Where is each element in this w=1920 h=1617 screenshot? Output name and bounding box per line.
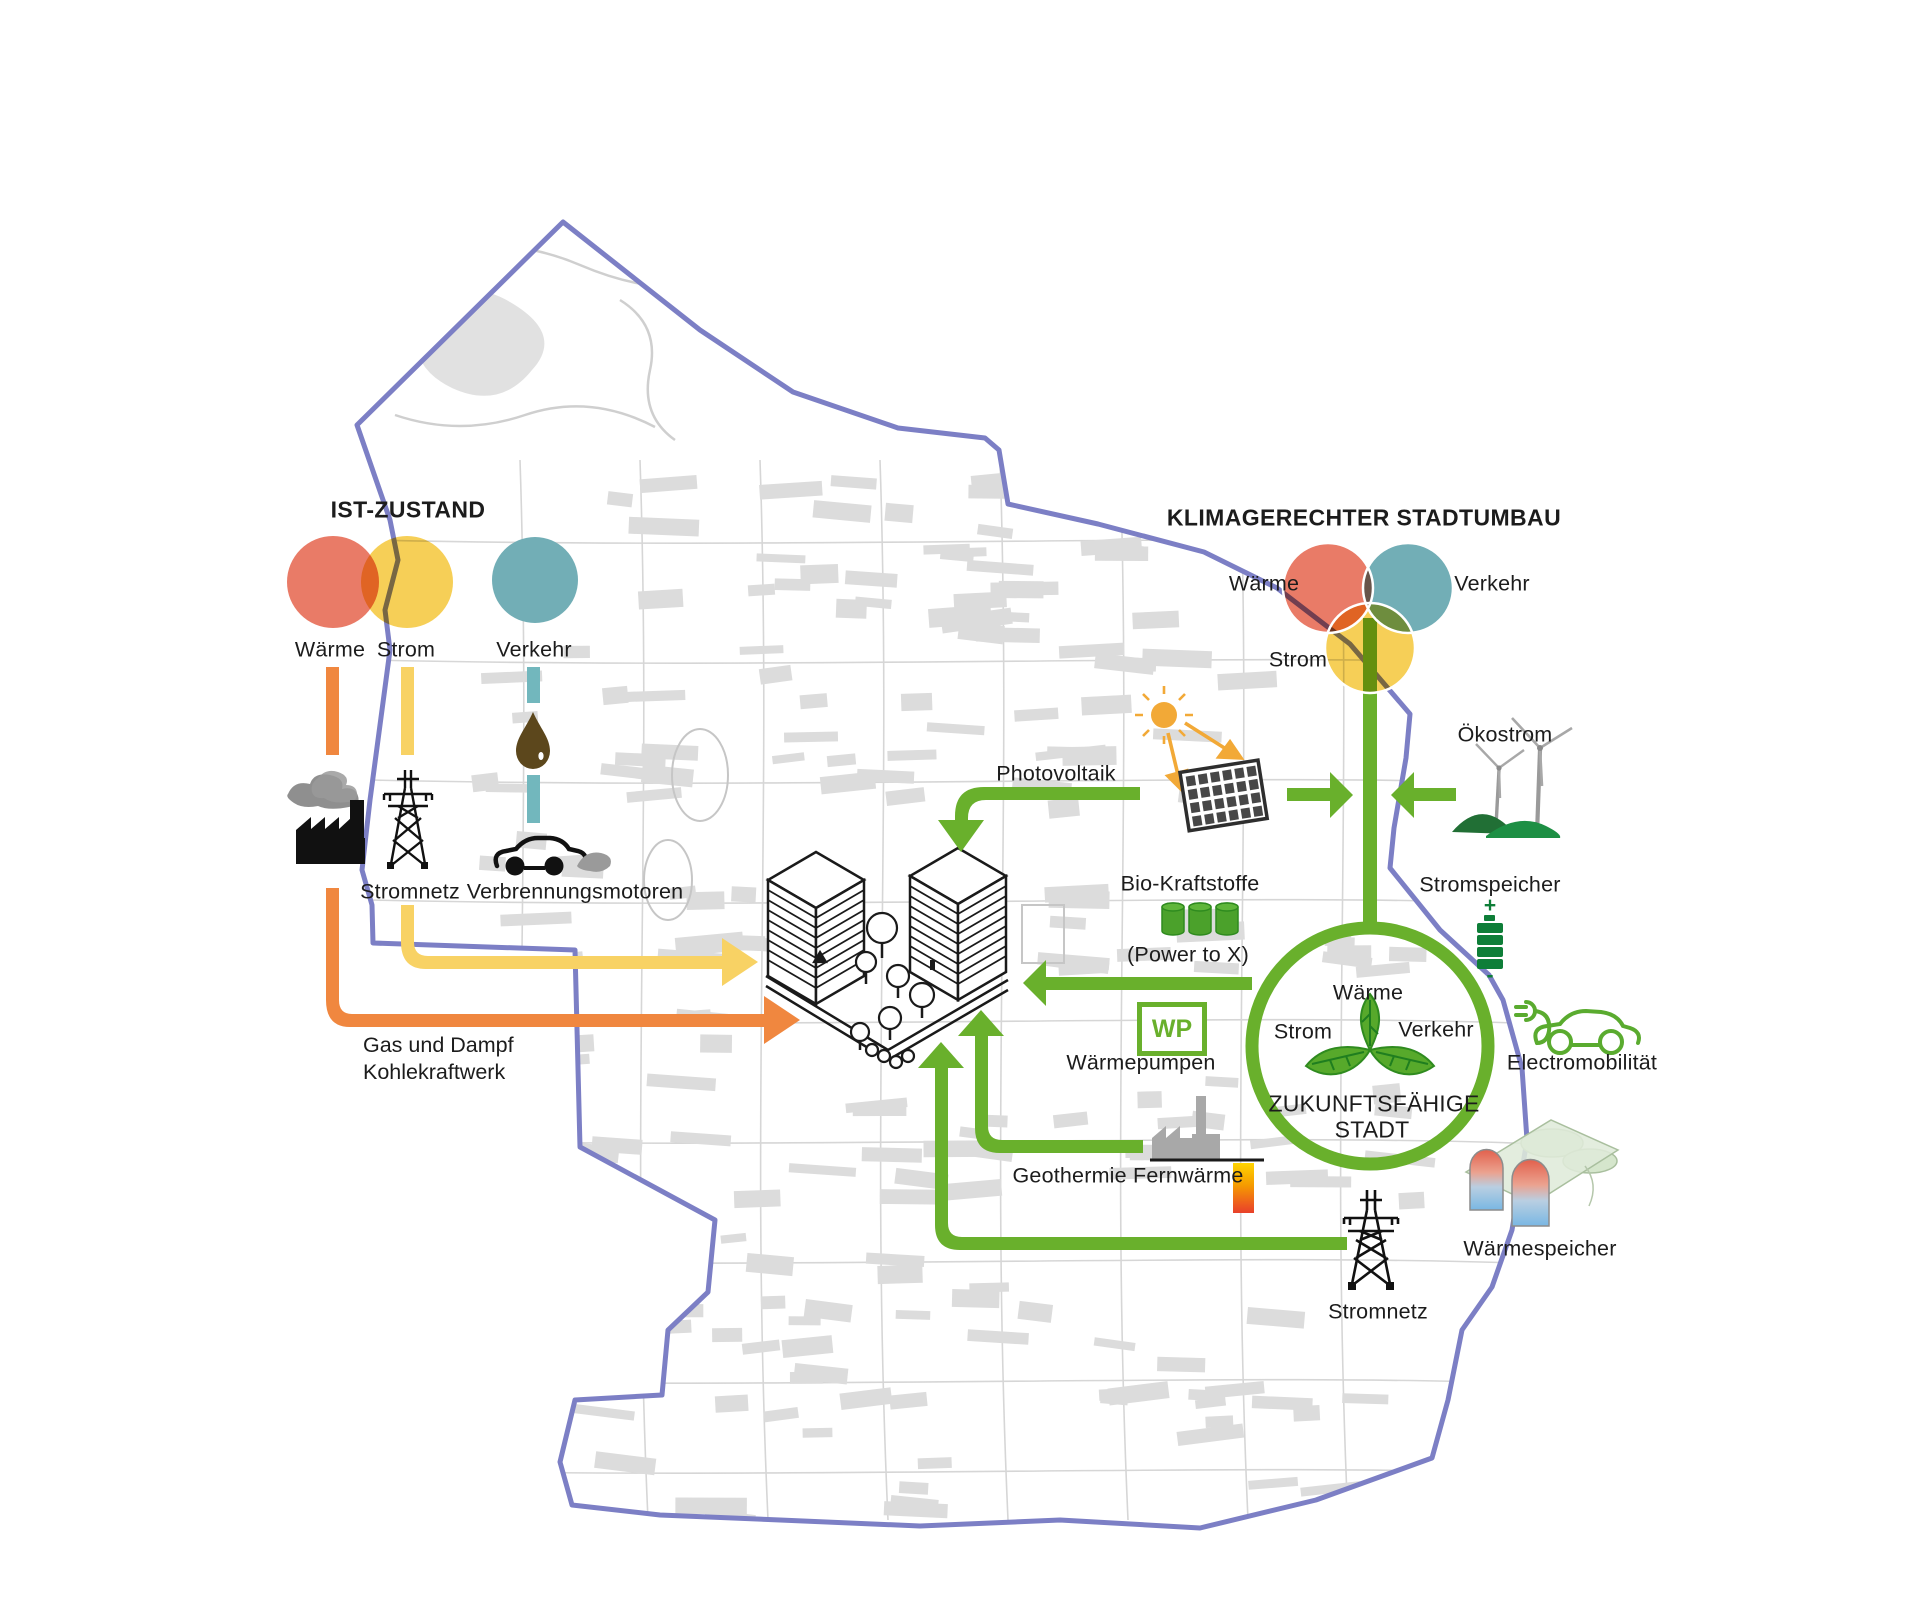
geothermie-label: Geothermie Fernwärme (1012, 1164, 1243, 1189)
coal-power-plant-icon (287, 771, 365, 864)
waermespeicher-label: Wärmespeicher (1463, 1237, 1616, 1262)
bio-kraftstoffe-label: Bio-Kraftstoffe (1121, 872, 1260, 897)
stromnetz-right-label: Stromnetz (1328, 1300, 1428, 1325)
waermepumpen-label: Wärmepumpen (1066, 1051, 1215, 1076)
ist-venn-circles (287, 536, 578, 628)
transmission-tower-right-icon (1344, 1190, 1398, 1290)
heat-flow-orange-arrow (326, 667, 800, 1044)
city-circle-label-verkehr: Verkehr (1398, 1018, 1474, 1043)
power-to-x-label: (Power to X) (1127, 943, 1249, 968)
city-circle-title-line2: STADT (1335, 1117, 1410, 1144)
venn-label-strom: Strom (1269, 648, 1327, 673)
venn-label-waerme: Wärme (1229, 572, 1299, 597)
underground-heat-storage-icon (1466, 1120, 1618, 1226)
combustion-car-icon (496, 838, 611, 876)
battery-minus-sign: - (1487, 964, 1494, 988)
infographic-canvas: IST-ZUSTAND Wärme Strom Verkehr Stromnet… (0, 0, 1920, 1617)
kohlekraftwerk-label: Gas und Dampf Kohlekraftwerk (363, 1032, 514, 1086)
battery-plus-sign: + (1484, 894, 1496, 918)
city-circle-label-strom: Strom (1274, 1020, 1332, 1045)
klima-heading: KLIMAGERECHTER STADTUMBAU (1167, 505, 1561, 532)
city-circle-title-line1: ZUKUNFTSFÄHIGE (1268, 1091, 1479, 1118)
ist-circle-label-strom: Strom (377, 638, 435, 663)
ist-circle-label-waerme: Wärme (295, 638, 365, 663)
ist-heading: IST-ZUSTAND (331, 497, 486, 524)
photovoltaik-label: Photovoltaik (996, 762, 1116, 787)
ist-circle-label-verkehr: Verkehr (496, 638, 572, 663)
oekostrom-label: Ökostrom (1458, 723, 1553, 748)
battery-icon (1477, 915, 1503, 969)
venn-label-verkehr: Verkehr (1454, 572, 1530, 597)
ist-stromnetz-label: Stromnetz (360, 880, 460, 905)
bio-fuel-barrels-icon (1162, 903, 1238, 935)
wp-box: WP (1137, 1002, 1207, 1056)
verbrennungsmotoren-label: Verbrennungsmotoren (467, 880, 684, 905)
solar-panel-icon (1180, 760, 1267, 831)
wp-label: WP (1152, 1015, 1192, 1044)
map-and-arrows-graphic (0, 0, 1920, 1617)
city-circle-label-waerme: Wärme (1333, 981, 1403, 1006)
electric-car-plug-icon (1516, 1002, 1639, 1053)
electromobilitaet-label: Electromobilität (1507, 1051, 1657, 1076)
transmission-tower-ist-icon (384, 770, 432, 869)
